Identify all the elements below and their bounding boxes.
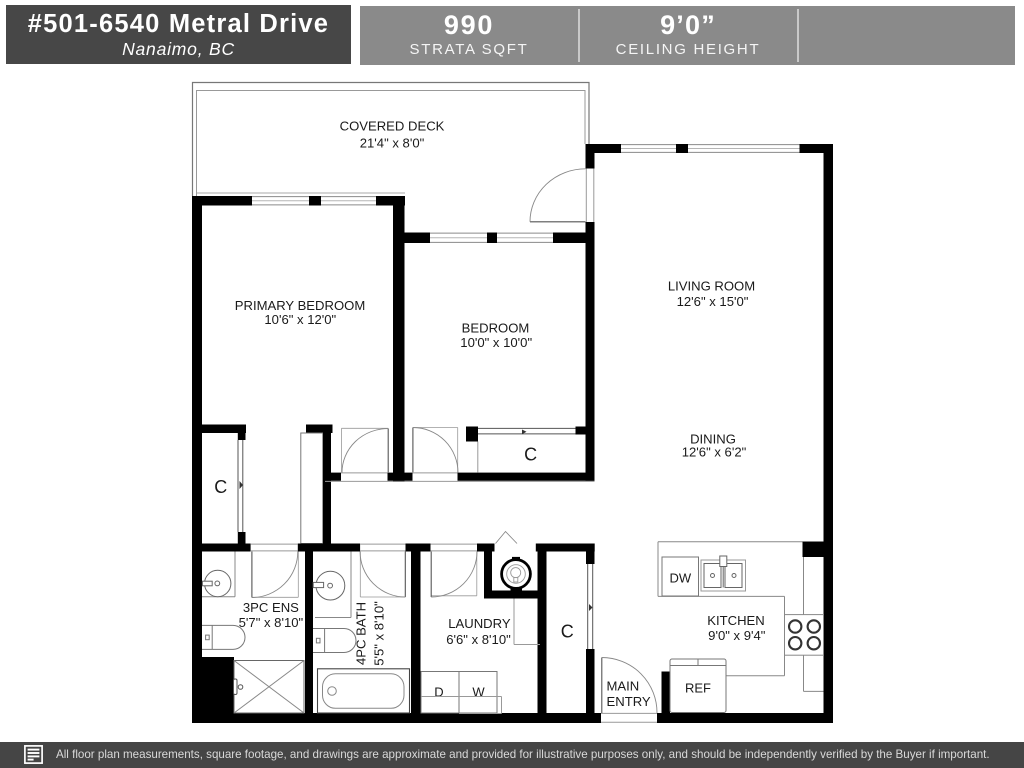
svg-text:5'5" x 8'10": 5'5" x 8'10"	[372, 601, 387, 666]
svg-text:4PC BATH: 4PC BATH	[353, 602, 368, 665]
svg-text:ENTRY: ENTRY	[607, 694, 651, 709]
svg-text:C: C	[524, 444, 537, 464]
svg-text:5'7" x 8'10": 5'7" x 8'10"	[239, 615, 304, 630]
svg-text:C: C	[561, 622, 574, 642]
svg-text:KITCHEN: KITCHEN	[707, 613, 764, 628]
svg-text:D: D	[434, 685, 443, 700]
svg-text:REF: REF	[685, 681, 711, 696]
svg-text:W: W	[472, 685, 485, 700]
svg-text:DW: DW	[669, 570, 691, 585]
svg-text:LIVING ROOM: LIVING ROOM	[668, 279, 755, 294]
svg-text:PRIMARY BEDROOM: PRIMARY BEDROOM	[235, 298, 365, 313]
svg-text:21'4" x 8'0": 21'4" x 8'0"	[360, 136, 425, 151]
svg-text:LAUNDRY: LAUNDRY	[448, 616, 511, 631]
svg-text:10'0" x 10'0": 10'0" x 10'0"	[460, 335, 532, 350]
svg-text:3PC ENS: 3PC ENS	[243, 600, 299, 615]
svg-text:BEDROOM: BEDROOM	[462, 320, 530, 335]
svg-text:12'6" x 15'0": 12'6" x 15'0"	[677, 294, 749, 309]
svg-text:9'0" x 9'4": 9'0" x 9'4"	[708, 628, 766, 643]
svg-text:12'6" x 6'2": 12'6" x 6'2"	[682, 445, 747, 460]
svg-text:C: C	[214, 477, 227, 497]
svg-text:MAIN: MAIN	[607, 679, 640, 694]
svg-text:6'6" x 8'10": 6'6" x 8'10"	[446, 632, 511, 647]
svg-text:COVERED DECK: COVERED DECK	[340, 119, 445, 134]
svg-text:10'6" x 12'0": 10'6" x 12'0"	[264, 312, 336, 327]
